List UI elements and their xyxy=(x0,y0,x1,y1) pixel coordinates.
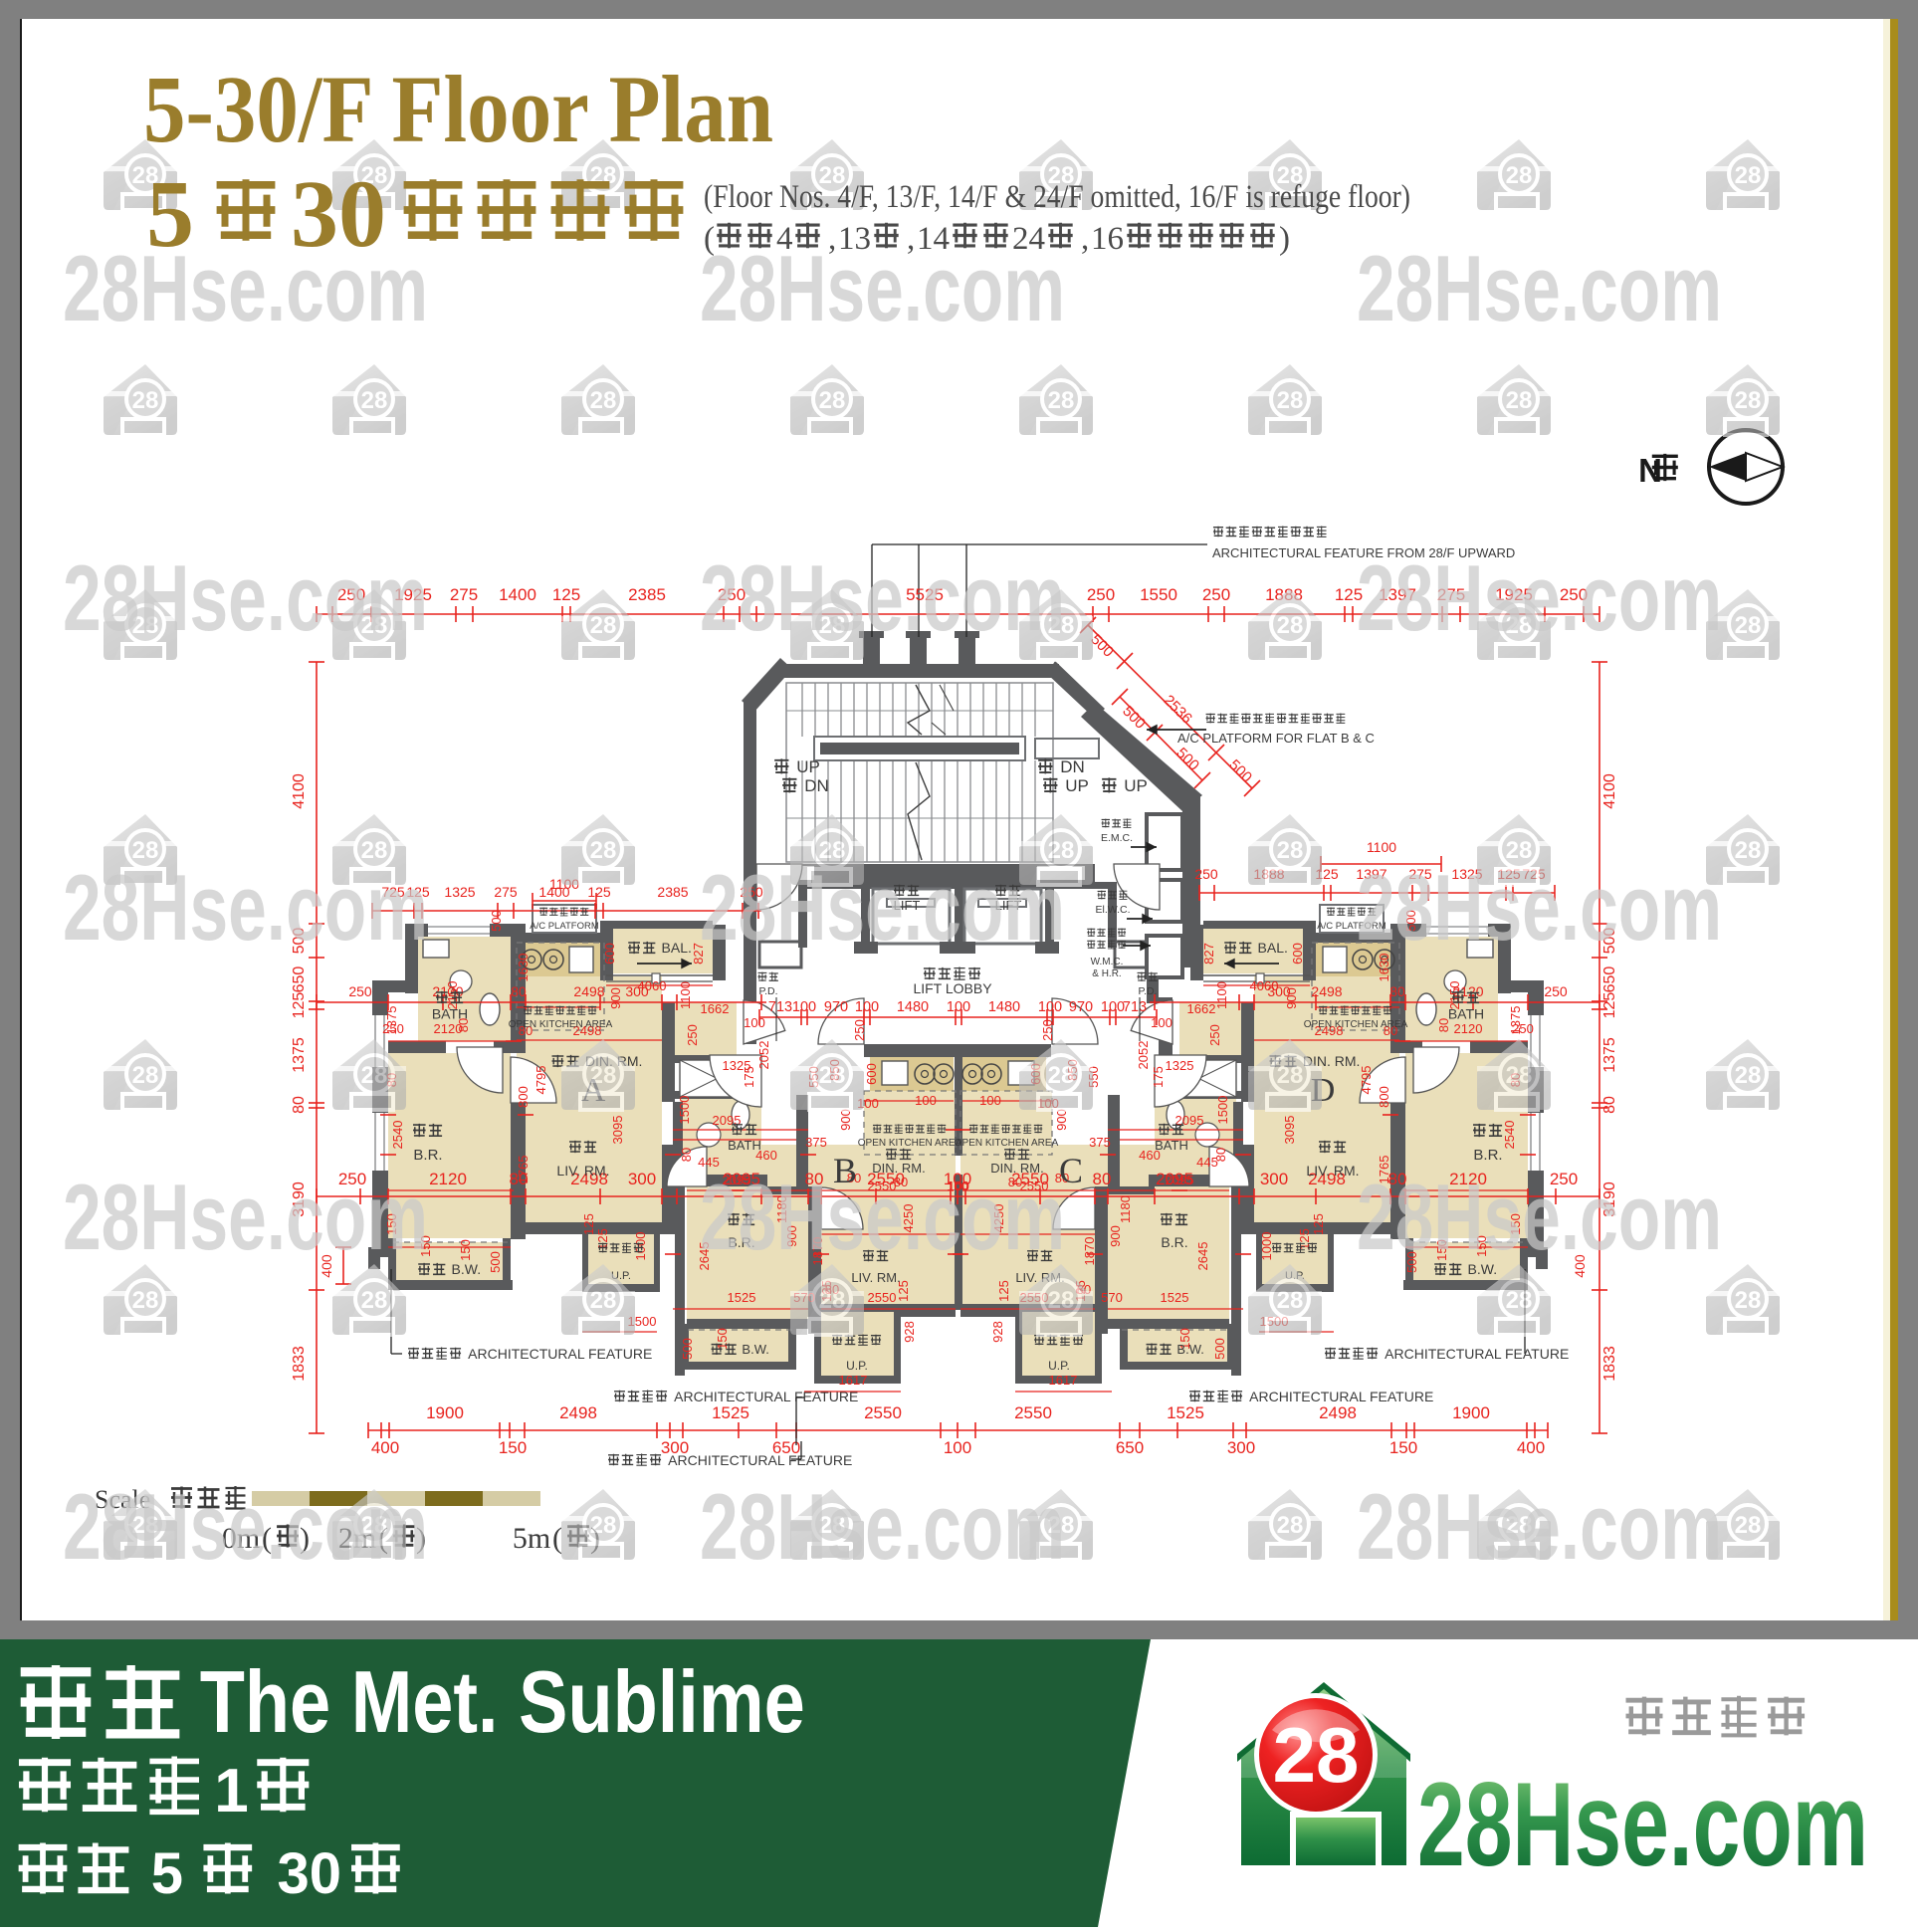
svg-text:400: 400 xyxy=(371,1438,399,1457)
svg-text:A/C PLATFORM: A/C PLATFORM xyxy=(530,921,599,932)
svg-text:El.W.C.: El.W.C. xyxy=(1095,904,1130,916)
svg-text:1900: 1900 xyxy=(1452,1403,1490,1422)
svg-text:300: 300 xyxy=(628,1170,656,1188)
svg-text:ARCHITECTURAL FEATURE: ARCHITECTURAL FEATURE xyxy=(1249,1389,1433,1404)
svg-text:DN: DN xyxy=(804,776,829,795)
svg-text:BATH: BATH xyxy=(432,1006,468,1022)
svg-text:2120: 2120 xyxy=(1454,1021,1483,1036)
svg-text:1525: 1525 xyxy=(712,1403,749,1422)
svg-text:,: , xyxy=(1081,221,1089,257)
svg-text:970: 970 xyxy=(824,999,848,1015)
svg-text:250: 250 xyxy=(1512,1021,1534,1036)
svg-text:30: 30 xyxy=(277,1841,341,1906)
svg-text:500: 500 xyxy=(680,1338,695,1360)
svg-text:1325: 1325 xyxy=(444,884,475,900)
svg-text:900: 900 xyxy=(608,987,623,1009)
svg-text:600: 600 xyxy=(1290,943,1305,965)
svg-text:650: 650 xyxy=(1601,966,1618,993)
svg-text:OPEN KITCHEN AREA: OPEN KITCHEN AREA xyxy=(1304,1019,1408,1030)
svg-text:500: 500 xyxy=(488,1251,503,1273)
svg-text:80: 80 xyxy=(1601,1096,1618,1114)
svg-text:U.P.: U.P. xyxy=(846,1359,868,1373)
svg-text:28Hse.com: 28Hse.com xyxy=(700,236,1065,340)
svg-text:1500: 1500 xyxy=(1215,1096,1230,1125)
svg-text:3095: 3095 xyxy=(1282,1116,1297,1145)
svg-text:5: 5 xyxy=(146,160,194,267)
svg-text:928: 928 xyxy=(902,1321,917,1343)
svg-text:125: 125 xyxy=(291,992,308,1019)
svg-text:250: 250 xyxy=(1087,585,1115,604)
svg-text:100: 100 xyxy=(947,999,970,1015)
svg-text:BATH: BATH xyxy=(1155,1138,1188,1153)
svg-text:150: 150 xyxy=(458,1239,473,1261)
svg-text:100: 100 xyxy=(792,999,816,1015)
svg-text:3095: 3095 xyxy=(610,1116,625,1145)
svg-text:5-30/F Floor Plan: 5-30/F Floor Plan xyxy=(143,56,773,162)
svg-text:2498: 2498 xyxy=(573,983,604,999)
svg-text:100: 100 xyxy=(944,1438,971,1457)
svg-text:,: , xyxy=(907,221,915,257)
svg-text:1833: 1833 xyxy=(1601,1346,1618,1382)
svg-text:2498: 2498 xyxy=(1311,983,1342,999)
svg-text:BAL.: BAL. xyxy=(1258,940,1288,956)
svg-text:The Met. Sublime: The Met. Sublime xyxy=(200,1652,805,1751)
svg-text:2120: 2120 xyxy=(429,1170,467,1188)
svg-text:B.R.: B.R. xyxy=(1161,1234,1187,1250)
svg-text:UP: UP xyxy=(1065,776,1089,795)
svg-text:28Hse.com: 28Hse.com xyxy=(63,855,428,960)
svg-text:80: 80 xyxy=(679,1148,694,1162)
svg-text:W.M.C.: W.M.C. xyxy=(1091,957,1124,967)
svg-text:250: 250 xyxy=(1202,585,1230,604)
svg-text:1180: 1180 xyxy=(1118,1195,1133,1223)
svg-text:1525: 1525 xyxy=(1167,1403,1204,1422)
svg-text:1617: 1617 xyxy=(839,1373,868,1388)
svg-text:28Hse.com: 28Hse.com xyxy=(700,545,1065,650)
svg-text:LIFT LOBBY: LIFT LOBBY xyxy=(913,980,992,996)
svg-text:2385: 2385 xyxy=(657,884,688,900)
svg-text:2550: 2550 xyxy=(1014,1403,1052,1422)
svg-text:30: 30 xyxy=(291,160,386,267)
svg-text:80: 80 xyxy=(1389,983,1405,999)
svg-text:,: , xyxy=(828,221,836,257)
svg-text:1662: 1662 xyxy=(701,1001,730,1016)
svg-text:445: 445 xyxy=(1196,1155,1218,1170)
svg-text:B.R.: B.R. xyxy=(1473,1147,1502,1164)
svg-text:2498: 2498 xyxy=(559,1403,597,1422)
svg-text:375: 375 xyxy=(805,1135,827,1150)
svg-text:28Hse.com: 28Hse.com xyxy=(63,1165,428,1269)
svg-text:ARCHITECTURAL FEATURE: ARCHITECTURAL FEATURE xyxy=(1385,1346,1569,1362)
svg-text:1525: 1525 xyxy=(1161,1290,1189,1305)
svg-text:1400: 1400 xyxy=(499,585,536,604)
svg-text:713: 713 xyxy=(768,999,792,1015)
svg-text:800: 800 xyxy=(1377,1086,1391,1108)
svg-text:1325: 1325 xyxy=(1166,1058,1194,1073)
svg-text:300: 300 xyxy=(1227,1438,1255,1457)
svg-text:100: 100 xyxy=(1101,999,1125,1015)
svg-text:OPEN KITCHEN AREA: OPEN KITCHEN AREA xyxy=(858,1138,962,1149)
svg-text:250: 250 xyxy=(1207,1024,1222,1046)
svg-text:500: 500 xyxy=(1212,1338,1227,1360)
svg-text:250: 250 xyxy=(1040,1019,1055,1041)
svg-text:2385: 2385 xyxy=(628,585,666,604)
svg-text:1525: 1525 xyxy=(728,1290,756,1305)
svg-text:B.W.: B.W. xyxy=(452,1261,482,1277)
svg-text:500: 500 xyxy=(489,910,504,932)
svg-text:1325: 1325 xyxy=(723,1058,751,1073)
svg-text:827: 827 xyxy=(1201,943,1216,965)
svg-text:1375: 1375 xyxy=(291,1037,308,1073)
svg-text:1630: 1630 xyxy=(516,954,531,982)
svg-text:28Hse.com: 28Hse.com xyxy=(63,545,428,650)
svg-text:650: 650 xyxy=(1116,1438,1144,1457)
svg-text:28Hse.com: 28Hse.com xyxy=(1417,1758,1868,1891)
svg-text:2540: 2540 xyxy=(390,1121,405,1150)
svg-text:900: 900 xyxy=(1108,1225,1123,1247)
svg-text:300: 300 xyxy=(1260,1170,1288,1188)
svg-text:(: ( xyxy=(704,221,715,257)
svg-text:4: 4 xyxy=(776,221,793,257)
svg-text:P.D.: P.D. xyxy=(758,985,777,997)
svg-text:100: 100 xyxy=(744,1015,765,1030)
svg-text:(Floor Nos. 4/F, 13/F, 14/F &: (Floor Nos. 4/F, 13/F, 14/F & 24/F omitt… xyxy=(704,179,1410,215)
svg-text:B.W.: B.W. xyxy=(1176,1342,1203,1357)
svg-text:650: 650 xyxy=(291,966,308,993)
svg-text:& H.R.: & H.R. xyxy=(1092,968,1121,979)
svg-text:ARCHITECTURAL FEATURE: ARCHITECTURAL FEATURE xyxy=(468,1346,652,1362)
svg-text:1765: 1765 xyxy=(516,1156,531,1184)
svg-text:2540: 2540 xyxy=(1502,1121,1517,1150)
svg-text:175: 175 xyxy=(1151,1066,1166,1088)
svg-text:100: 100 xyxy=(1038,999,1062,1015)
svg-text:80: 80 xyxy=(511,983,527,999)
svg-text:125: 125 xyxy=(1601,992,1618,1019)
svg-text:80: 80 xyxy=(1093,1170,1112,1188)
svg-text:1900: 1900 xyxy=(426,1403,464,1422)
svg-text:150: 150 xyxy=(1389,1438,1417,1457)
svg-text:E.M.C.: E.M.C. xyxy=(1101,832,1133,844)
svg-text:800: 800 xyxy=(516,1086,531,1108)
svg-text:250: 250 xyxy=(852,1019,867,1041)
svg-text:713: 713 xyxy=(1123,999,1147,1015)
svg-text:28Hse.com: 28Hse.com xyxy=(1357,236,1722,340)
svg-text:28Hse.com: 28Hse.com xyxy=(700,1474,1065,1579)
svg-text:): ) xyxy=(1279,221,1290,257)
svg-text:900: 900 xyxy=(1284,987,1299,1009)
svg-text:250: 250 xyxy=(348,983,372,999)
svg-text:1100: 1100 xyxy=(1367,839,1396,855)
svg-text:600: 600 xyxy=(864,1063,879,1085)
svg-text:400: 400 xyxy=(1517,1438,1545,1457)
svg-text:1500: 1500 xyxy=(677,1096,692,1125)
svg-text:BATH: BATH xyxy=(728,1138,761,1153)
svg-text:13: 13 xyxy=(838,221,871,257)
svg-text:928: 928 xyxy=(990,1321,1005,1343)
svg-text:2498: 2498 xyxy=(1319,1403,1357,1422)
svg-text:ARCHITECTURAL FEATURE: ARCHITECTURAL FEATURE xyxy=(674,1389,858,1404)
svg-text:600: 600 xyxy=(602,943,617,965)
svg-text:375: 375 xyxy=(1089,1135,1111,1150)
svg-text:5m: 5m xyxy=(513,1522,550,1555)
svg-text:900: 900 xyxy=(1054,1109,1069,1131)
svg-text:250: 250 xyxy=(685,1024,700,1046)
svg-text:125: 125 xyxy=(581,1213,596,1235)
svg-text:125: 125 xyxy=(552,585,580,604)
svg-text:ARCHITECTURAL FEATURE: ARCHITECTURAL FEATURE xyxy=(668,1452,852,1468)
svg-text:1375: 1375 xyxy=(1601,1037,1618,1073)
svg-text:LIV. RM.: LIV. RM. xyxy=(1306,1163,1359,1179)
svg-text:16: 16 xyxy=(1091,221,1124,257)
svg-text:BATH: BATH xyxy=(1448,1006,1484,1022)
svg-text:80: 80 xyxy=(291,1096,308,1114)
svg-text:BAL.: BAL. xyxy=(662,940,692,956)
svg-text:2052: 2052 xyxy=(1136,1041,1151,1070)
svg-text:28: 28 xyxy=(1273,1711,1360,1799)
svg-text:570: 570 xyxy=(1101,1290,1123,1305)
svg-text:275: 275 xyxy=(494,884,518,900)
svg-text:1550: 1550 xyxy=(1140,585,1177,604)
svg-text:4795: 4795 xyxy=(1359,1066,1374,1095)
svg-text:1617: 1617 xyxy=(1049,1373,1078,1388)
svg-text:2550: 2550 xyxy=(864,1403,902,1422)
svg-text:2095: 2095 xyxy=(1166,1173,1194,1187)
svg-text:14: 14 xyxy=(917,221,950,257)
svg-text:DN: DN xyxy=(1060,757,1085,776)
svg-text:28Hse.com: 28Hse.com xyxy=(1357,545,1722,650)
svg-text:1662: 1662 xyxy=(1187,1001,1216,1016)
svg-text:900: 900 xyxy=(838,1109,853,1131)
svg-text:(: ( xyxy=(552,1522,562,1555)
svg-text:125: 125 xyxy=(1311,1213,1326,1235)
svg-text:24: 24 xyxy=(1012,221,1045,257)
svg-text:28Hse.com: 28Hse.com xyxy=(1357,855,1722,960)
svg-text:1870: 1870 xyxy=(1082,1237,1097,1266)
svg-text:A/C PLATFORM FOR FLAT B & C: A/C PLATFORM FOR FLAT B & C xyxy=(1177,731,1375,746)
svg-text:U.P.: U.P. xyxy=(1048,1359,1070,1373)
svg-text:UP: UP xyxy=(796,757,820,776)
svg-text:LIV. RM.: LIV. RM. xyxy=(851,1270,900,1285)
svg-text:275: 275 xyxy=(450,585,478,604)
svg-text:150: 150 xyxy=(499,1438,527,1457)
svg-text:28Hse.com: 28Hse.com xyxy=(63,1474,428,1579)
svg-text:1480: 1480 xyxy=(988,999,1020,1015)
svg-text:B.W.: B.W. xyxy=(742,1342,768,1357)
svg-text:2120: 2120 xyxy=(434,1021,463,1036)
svg-text:28Hse.com: 28Hse.com xyxy=(700,855,1065,960)
svg-text:125: 125 xyxy=(996,1280,1011,1302)
svg-text:2645: 2645 xyxy=(1195,1242,1210,1271)
svg-text:250: 250 xyxy=(1544,983,1568,999)
svg-text:2052: 2052 xyxy=(756,1041,771,1070)
svg-text:2550: 2550 xyxy=(868,1290,897,1305)
svg-text:4795: 4795 xyxy=(533,1066,548,1095)
svg-text:1000: 1000 xyxy=(1259,1232,1274,1261)
svg-text:UP: UP xyxy=(1124,776,1148,795)
svg-text:1: 1 xyxy=(214,1757,248,1825)
svg-text:OPEN KITCHEN AREA: OPEN KITCHEN AREA xyxy=(509,1019,613,1030)
svg-text:28Hse.com: 28Hse.com xyxy=(1357,1474,1722,1579)
svg-text:100: 100 xyxy=(1151,1015,1172,1030)
svg-text:4100: 4100 xyxy=(291,773,308,809)
svg-text:970: 970 xyxy=(1069,999,1093,1015)
svg-text:28Hse.com: 28Hse.com xyxy=(1357,1165,1722,1269)
svg-text:LIV. RM.: LIV. RM. xyxy=(556,1163,609,1179)
svg-text:5: 5 xyxy=(151,1841,183,1906)
svg-text:P.D.: P.D. xyxy=(1138,985,1157,997)
svg-text:1833: 1833 xyxy=(291,1346,308,1382)
svg-text:OPEN KITCHEN AREA: OPEN KITCHEN AREA xyxy=(955,1138,1059,1149)
svg-text:250: 250 xyxy=(382,1021,404,1036)
svg-text:100: 100 xyxy=(855,999,879,1015)
svg-text:1480: 1480 xyxy=(897,999,929,1015)
svg-text:28Hse.com: 28Hse.com xyxy=(700,1165,1065,1269)
svg-text:B.R.: B.R. xyxy=(413,1147,442,1164)
svg-text:250: 250 xyxy=(1194,866,1218,882)
svg-text:4100: 4100 xyxy=(1601,773,1618,809)
